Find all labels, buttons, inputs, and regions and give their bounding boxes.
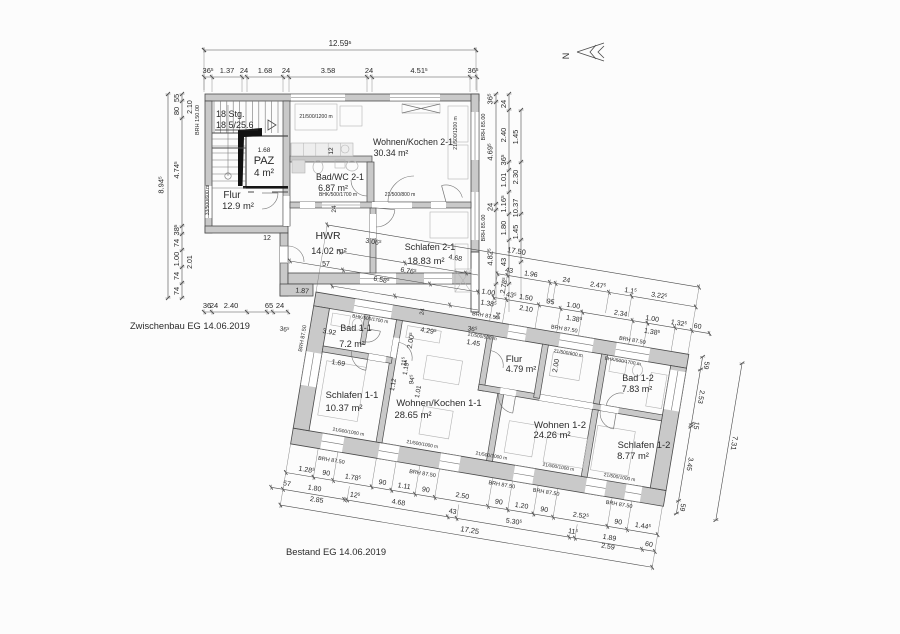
svg-text:24: 24 — [365, 66, 373, 75]
svg-text:12.595: 12.595 — [329, 39, 352, 48]
svg-text:24: 24 — [499, 100, 508, 108]
svg-text:90: 90 — [614, 518, 623, 526]
svg-text:12: 12 — [328, 147, 335, 155]
svg-text:24: 24 — [562, 277, 571, 285]
svg-text:43: 43 — [499, 258, 508, 266]
svg-text:18 Stg.: 18 Stg. — [216, 109, 245, 119]
svg-text:7.2 m²: 7.2 m² — [339, 339, 365, 349]
svg-text:Bestand EG 14.06.2019: Bestand EG 14.06.2019 — [286, 546, 386, 557]
svg-text:90: 90 — [378, 479, 387, 487]
svg-text:90: 90 — [421, 486, 430, 494]
svg-text:24: 24 — [331, 205, 338, 213]
svg-text:24: 24 — [276, 301, 284, 310]
svg-text:BRH 150.00: BRH 150.00 — [195, 105, 201, 135]
svg-text:1.37: 1.37 — [220, 66, 235, 75]
svg-text:BHK/500/1700 m: BHK/500/1700 m — [319, 192, 357, 198]
svg-text:Zwischenbau EG 14.06.2019: Zwischenbau EG 14.06.2019 — [130, 321, 250, 331]
svg-text:10.37: 10.37 — [511, 199, 520, 218]
svg-text:43: 43 — [448, 508, 457, 516]
svg-text:Schlafen 1-2: Schlafen 1-2 — [618, 439, 671, 450]
svg-text:90: 90 — [494, 498, 503, 506]
svg-text:24: 24 — [282, 66, 290, 75]
svg-text:1.45: 1.45 — [511, 225, 520, 240]
svg-text:2.30: 2.30 — [511, 170, 520, 185]
svg-text:21/500/800 m: 21/500/800 m — [385, 192, 416, 198]
svg-text:30.34 m²: 30.34 m² — [374, 148, 409, 158]
svg-text:Bad 1-2: Bad 1-2 — [622, 373, 654, 383]
svg-text:Schlafen 1-1: Schlafen 1-1 — [326, 389, 379, 400]
svg-text:90: 90 — [540, 506, 549, 514]
svg-text:10.37 m²: 10.37 m² — [326, 402, 363, 413]
svg-text:1.00: 1.00 — [172, 252, 181, 267]
svg-text:N: N — [561, 53, 571, 60]
svg-text:21/500/1200 m: 21/500/1200 m — [453, 116, 459, 149]
svg-text:Wohnen/Kochen 1-1: Wohnen/Kochen 1-1 — [396, 397, 481, 408]
svg-text:12: 12 — [263, 235, 271, 242]
svg-text:3.58: 3.58 — [321, 66, 336, 75]
svg-text:Schlafen 2-1: Schlafen 2-1 — [405, 242, 456, 252]
svg-text:1.68: 1.68 — [258, 66, 273, 75]
svg-text:1.80: 1.80 — [499, 221, 508, 236]
svg-text:7.83 m²: 7.83 m² — [622, 384, 653, 394]
svg-text:BRH 85.00: BRH 85.00 — [481, 215, 487, 242]
svg-text:Bad/WC 2-1: Bad/WC 2-1 — [316, 172, 364, 182]
svg-text:74: 74 — [172, 272, 181, 280]
svg-text:33/500/600 m: 33/500/600 m — [205, 185, 211, 216]
svg-text:Bad 1-1: Bad 1-1 — [340, 323, 372, 333]
svg-text:24.26 m²: 24.26 m² — [534, 429, 571, 440]
svg-text:PAZ: PAZ — [254, 155, 275, 167]
svg-text:4 m²: 4 m² — [254, 168, 275, 179]
svg-text:59: 59 — [678, 503, 686, 512]
svg-text:74: 74 — [172, 239, 181, 247]
svg-text:1.87: 1.87 — [295, 287, 309, 295]
svg-text:24: 24 — [210, 301, 218, 310]
svg-text:2.40: 2.40 — [224, 301, 239, 310]
svg-text:24: 24 — [240, 66, 248, 75]
svg-text:2.01: 2.01 — [187, 255, 194, 269]
svg-text:15: 15 — [692, 421, 700, 430]
svg-text:BRH 85.00: BRH 85.00 — [481, 114, 487, 141]
svg-text:65: 65 — [265, 301, 273, 310]
svg-text:18 5/25.6: 18 5/25.6 — [216, 120, 254, 130]
svg-text:24: 24 — [486, 203, 495, 211]
svg-text:21/500/1200 m: 21/500/1200 m — [299, 114, 332, 120]
svg-text:1.68: 1.68 — [258, 147, 271, 154]
svg-text:95: 95 — [546, 298, 555, 306]
svg-text:60: 60 — [644, 541, 653, 549]
svg-text:1.45: 1.45 — [511, 130, 520, 145]
svg-text:60: 60 — [693, 323, 702, 331]
svg-text:43: 43 — [505, 267, 514, 275]
svg-text:2.10: 2.10 — [187, 100, 194, 114]
svg-text:Wohnen/Kochen 2-1: Wohnen/Kochen 2-1 — [373, 137, 453, 147]
svg-text:4.79 m²: 4.79 m² — [506, 364, 537, 374]
svg-text:8.77 m²: 8.77 m² — [617, 450, 649, 461]
svg-text:55: 55 — [172, 94, 181, 102]
svg-text:74: 74 — [172, 287, 181, 295]
svg-text:28.65 m²: 28.65 m² — [395, 409, 432, 420]
svg-text:59: 59 — [702, 361, 710, 370]
svg-text:1.01: 1.01 — [499, 173, 508, 188]
svg-text:90: 90 — [322, 470, 331, 478]
svg-text:2.40: 2.40 — [499, 128, 508, 143]
svg-text:14.02 m²: 14.02 m² — [311, 246, 347, 256]
svg-text:HWR: HWR — [315, 230, 340, 242]
svg-text:12.9 m²: 12.9 m² — [222, 200, 254, 211]
svg-text:80: 80 — [172, 107, 181, 115]
